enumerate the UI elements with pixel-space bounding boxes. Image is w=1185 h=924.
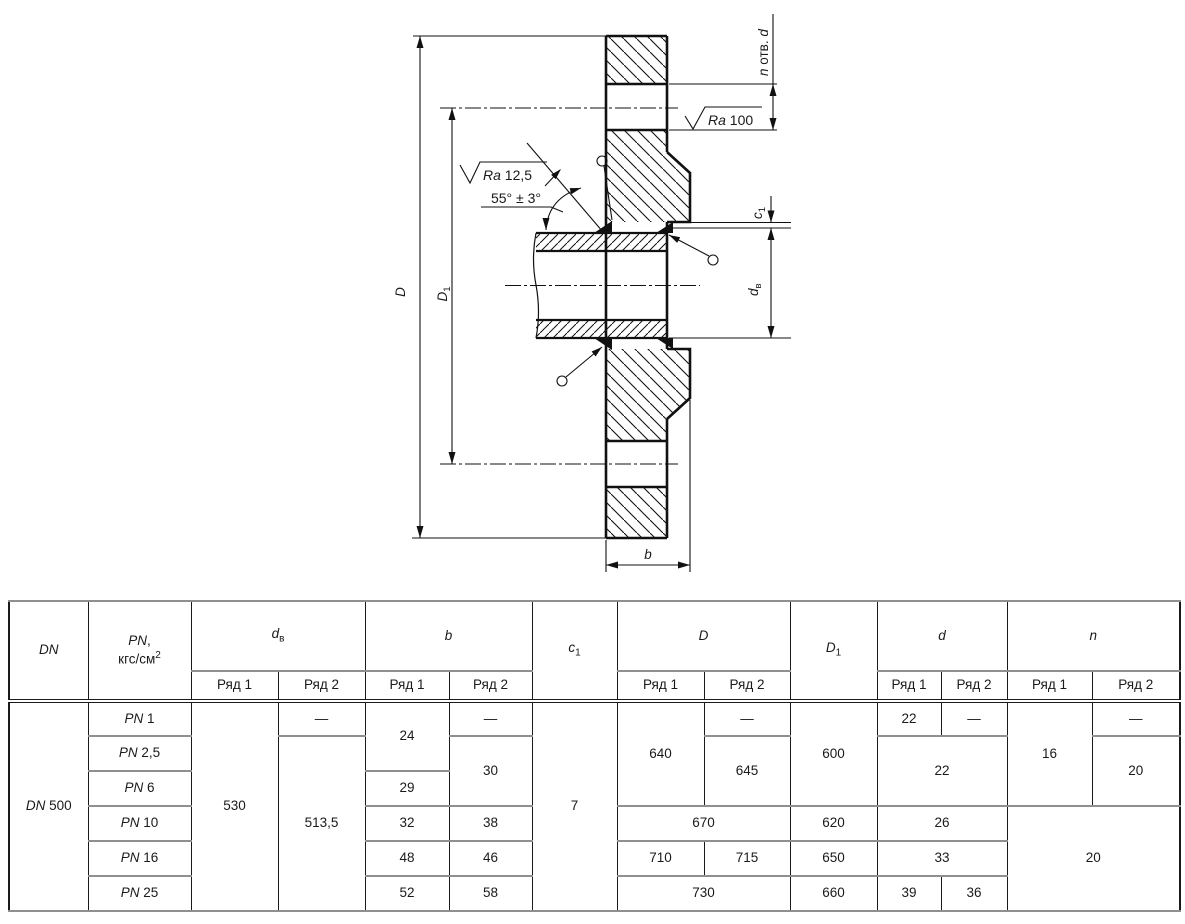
table-cell: 24: [365, 701, 449, 771]
weld-bottom-left: [594, 338, 612, 350]
dimension-label-D: D: [393, 287, 408, 297]
table-cell: 22: [877, 701, 941, 736]
table-cell: 660: [790, 876, 877, 911]
flange-outline: [606, 36, 690, 538]
subheader-cell: Ряд 2: [449, 671, 532, 701]
subheader-cell: Ряд 1: [1007, 671, 1092, 701]
subheader-cell: Ряд 2: [1092, 671, 1180, 701]
header-cell: d: [877, 601, 1007, 671]
table-cell: 38: [449, 806, 532, 841]
table-cell: 46: [449, 841, 532, 876]
table-cell: 39: [877, 876, 941, 911]
dimension-label-n-holes: n отв. d: [756, 29, 771, 76]
table-cell: 52: [365, 876, 449, 911]
table-cell: 715: [704, 841, 790, 876]
dimension-lines: [412, 14, 791, 572]
subheader-cell: Ряд 1: [191, 671, 278, 701]
table-cell: 710: [617, 841, 704, 876]
table-cell: —: [449, 701, 532, 736]
table-cell: 600: [790, 701, 877, 806]
table-cell: 640: [617, 701, 704, 806]
table-cell: 22: [877, 736, 1007, 806]
table-cell: 32: [365, 806, 449, 841]
header-cell: c1: [532, 601, 617, 701]
table-cell: 29: [365, 771, 449, 806]
table-cell: 670: [617, 806, 790, 841]
table-cell: PN 25: [88, 876, 191, 911]
subheader-cell: Ряд 1: [365, 671, 449, 701]
weld-all-around-circle-bottom: [557, 376, 567, 386]
bevel-construction-line: [527, 143, 603, 232]
subheader-cell: Ряд 1: [877, 671, 941, 701]
table-cell: 16: [1007, 701, 1092, 806]
table-cell: —: [941, 701, 1007, 736]
weld-all-around-circle-right: [708, 255, 718, 265]
technical-drawing: D D1 b c1 dв n отв. d Ra 100 Ra 12,5 55°…: [0, 0, 1185, 600]
roughness-label-ra125: Ra 12,5: [483, 167, 532, 183]
weld-bottom-right: [656, 338, 673, 349]
header-cell: DN: [9, 601, 88, 701]
dimension-label-D1: D1: [435, 286, 453, 301]
subheader-cell: Ряд 2: [941, 671, 1007, 701]
table-cell: 7: [532, 701, 617, 911]
table-cell: PN 16: [88, 841, 191, 876]
table-cell: PN 10: [88, 806, 191, 841]
table-body: DN 500PN 1530—24—7640—60022—16—PN 2,5513…: [9, 701, 1180, 911]
table-cell: —: [278, 701, 365, 736]
table-cell: 20: [1092, 736, 1180, 806]
table-header: DNPN,кгс/см2dвbc1DD1dnРяд 1Ряд 2Ряд 1Ряд…: [9, 601, 1180, 701]
header-cell: PN,кгс/см2: [88, 601, 191, 701]
subheader-cell: Ряд 1: [617, 671, 704, 701]
table-cell: PN 2,5: [88, 736, 191, 771]
table-cell: 620: [790, 806, 877, 841]
table-cell: 20: [1007, 806, 1180, 911]
table-cell: 26: [877, 806, 1007, 841]
table-cell: DN 500: [9, 701, 88, 911]
table-cell: 36: [941, 876, 1007, 911]
table-cell: 730: [617, 876, 790, 911]
table-cell: 645: [704, 736, 790, 806]
table-cell: 513,5: [278, 736, 365, 911]
angle-label: 55° ± 3°: [491, 190, 541, 206]
header-cell: D1: [790, 601, 877, 701]
table-cell: 30: [449, 736, 532, 806]
table-cell: 530: [191, 701, 278, 911]
table-cell: PN 1: [88, 701, 191, 736]
roughness-label-ra100: Ra 100: [708, 112, 753, 128]
dimension-label-b: b: [644, 547, 652, 562]
table-cell: 48: [365, 841, 449, 876]
header-cell: D: [617, 601, 790, 671]
header-cell: n: [1007, 601, 1180, 671]
table-cell: —: [1092, 701, 1180, 736]
weld-top-right: [656, 222, 673, 233]
flange-section-hatching: [606, 36, 690, 538]
dimension-table: DNPN,кгс/см2dвbc1DD1dnРяд 1Ряд 2Ряд 1Ряд…: [8, 600, 1181, 912]
header-cell: b: [365, 601, 532, 671]
subheader-cell: Ряд 2: [704, 671, 790, 701]
dimension-label-c1: c1: [750, 207, 768, 219]
table-cell: 33: [877, 841, 1007, 876]
page: D D1 b c1 dв n отв. d Ra 100 Ra 12,5 55°…: [0, 0, 1185, 924]
table-cell: PN 6: [88, 771, 191, 806]
dimension-label-dv: dв: [746, 283, 764, 296]
subheader-cell: Ряд 2: [278, 671, 365, 701]
table-cell: 650: [790, 841, 877, 876]
header-cell: dв: [191, 601, 365, 671]
table-cell: —: [704, 701, 790, 736]
angle-arc: [546, 188, 581, 230]
table-cell: 58: [449, 876, 532, 911]
